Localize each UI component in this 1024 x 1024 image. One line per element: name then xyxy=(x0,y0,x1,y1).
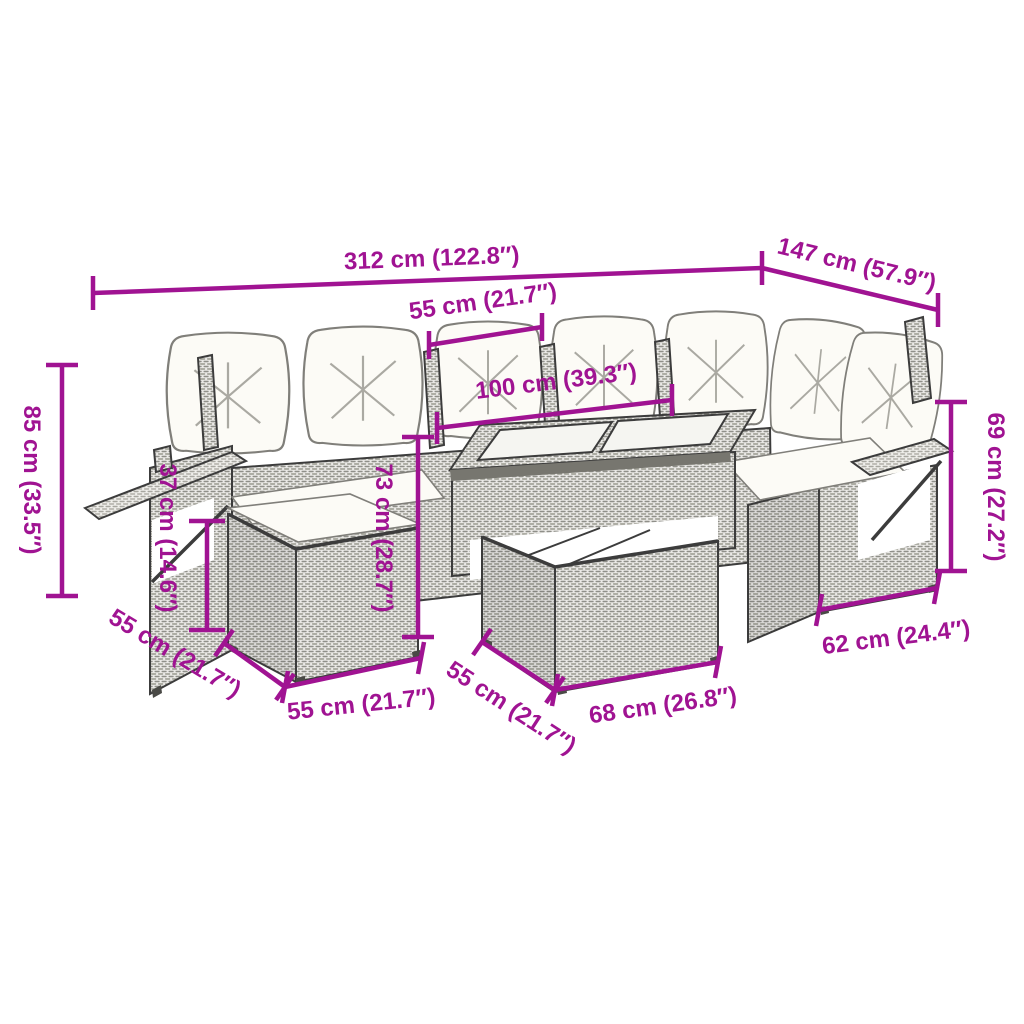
dimension-overall-height: 85 cm (33.5″) xyxy=(18,365,78,596)
dimension-label-seat-width: 55 cm (21.7″) xyxy=(407,278,558,325)
dimension-overall-depth: 147 cm (57.9″) xyxy=(762,233,939,327)
back-cushion xyxy=(303,327,422,446)
right-sofa-seat-front-shade xyxy=(748,487,819,642)
dimension-label-overall-width: 312 cm (122.8″) xyxy=(343,242,520,276)
product-dimension-diagram: 312 cm (122.8″) 147 cm (57.9″) 55 cm (21… xyxy=(0,0,1024,1024)
dimension-label-table-height: 73 cm (28.7″) xyxy=(370,464,397,613)
dimension-label-stool-width: 55 cm (21.7″) xyxy=(286,683,437,725)
diagram-canvas: 312 cm (122.8″) 147 cm (57.9″) 55 cm (21… xyxy=(0,0,1024,1024)
dimension-label-sofa-height: 69 cm (27.2″) xyxy=(982,413,1009,562)
dimension-sofa-height: 69 cm (27.2″) xyxy=(935,402,1009,571)
dimension-label-overall-depth: 147 cm (57.9″) xyxy=(775,233,939,297)
stool-front-face xyxy=(296,528,418,682)
dimension-label-overall-height: 85 cm (33.5″) xyxy=(18,406,45,555)
dimension-label-right-seat-width: 62 cm (24.4″) xyxy=(821,615,972,660)
back-cushion xyxy=(167,333,290,454)
dimension-label-table-width: 68 cm (26.8″) xyxy=(587,682,738,729)
dimension-label-stool-height: 37 cm (14.6″) xyxy=(154,464,181,613)
